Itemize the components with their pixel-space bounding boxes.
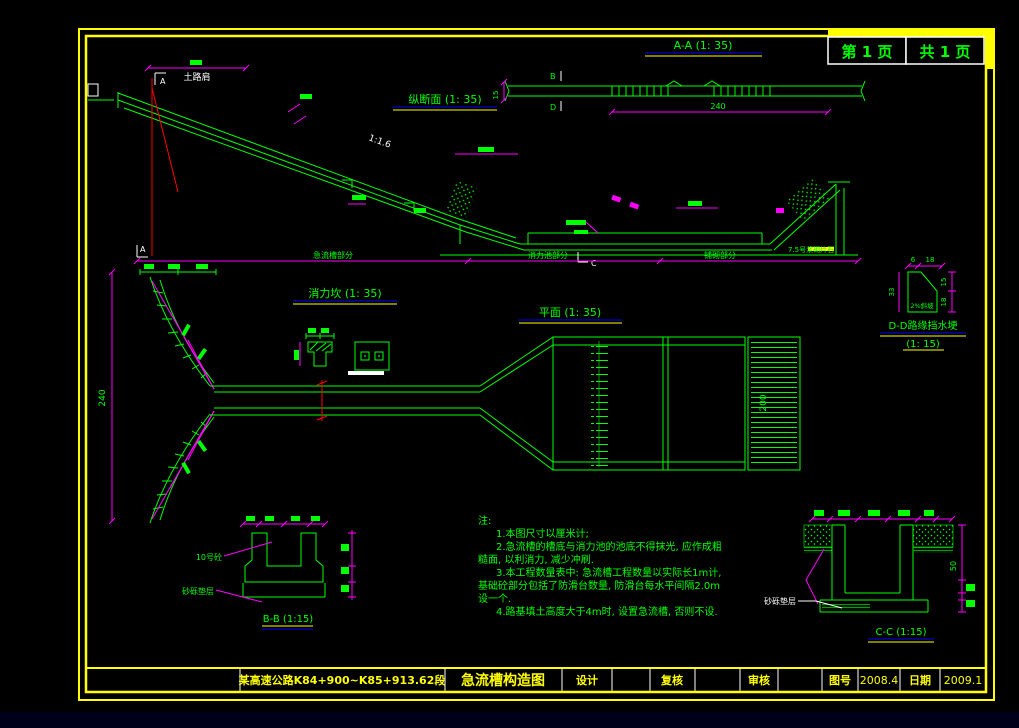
note-line: 3.本工程数量表中: 急流槽工程数量以实际长1m计, [496, 566, 721, 579]
dim-dd-top-a: 6 [911, 256, 916, 264]
view-title-plan: 平面 (1: 35) [539, 306, 601, 319]
dim-cc-depth: 50 [949, 561, 958, 571]
view-title-aa: A-A (1: 35) [674, 39, 733, 52]
dim-dd-left: 33 [888, 288, 896, 297]
notes-heading: 注: [478, 514, 491, 527]
dim-flare-height: 240 [98, 389, 108, 406]
legend-box [88, 84, 98, 96]
section-marker-d: D [550, 103, 556, 112]
page-number-box: 第 1 页 共 1 页 [828, 37, 984, 64]
title-block-date-label: 日期 [909, 673, 931, 687]
section-bb-view: 10号砼 砂砾垫层 B-B (1:15) [182, 516, 356, 629]
notes-block: 注: 1.本图尺寸以厘米计; 2.急流槽的槽底与消力池的池底不得抹光, 应作成粗… [478, 514, 722, 618]
view-title-dd: D-D路缘挡水埂 [888, 319, 957, 332]
title-block-drawing-title: 急流槽构造图 [461, 672, 545, 689]
note-line: 1.本图尺寸以厘米计; [496, 527, 589, 540]
label-bb-cushion: 砂砾垫层 [182, 586, 214, 596]
dim-aa-thickness: 15 [492, 91, 500, 100]
label-cc-cushion: 砂砾垫层 [764, 596, 796, 606]
dim-dd-right-a: 15 [940, 278, 948, 287]
dim-dd-top-b: 18 [926, 256, 935, 264]
title-block-design-label: 设计 [576, 673, 598, 687]
note-line: 4.路基填土高度大于4m时, 设置急流槽, 否则不设. [496, 605, 718, 618]
note-line: 设一个. [478, 593, 511, 605]
label-masonry: 7.5号浆砌片石 [788, 245, 834, 254]
dim-plan-depth: 200 [759, 394, 769, 411]
dim-aa-length: 240 [710, 102, 725, 111]
note-line: 2.急流槽的槽底与消力池的池底不得抹光, 应作成粗 [496, 540, 722, 553]
page-current: 第 1 页 [842, 43, 893, 61]
title-block-recheck-label: 复核 [660, 673, 683, 687]
cad-drawing: 第 1 页 共 1 页 A-A (1: 35) 15 B D 240 纵断面 (… [0, 0, 1019, 728]
label-dd-slope: 2%斜坡 [910, 301, 934, 310]
profile-view: 纵断面 (1: 35) [88, 60, 861, 268]
section-marker-a-top: A [160, 77, 166, 86]
title-block-figno-value: 2008.4 [860, 674, 899, 687]
note-line: 基础砼部分包括了防滑台数量, 防滑台每水平间隔2.0m [478, 579, 720, 592]
view-title-dd-scale: (1: 15) [906, 339, 940, 350]
label-shoulder: 土路肩 [183, 71, 210, 83]
label-apron-part: 铺砌部分 [704, 250, 736, 260]
dim-dd-right-b: 18 [940, 298, 948, 307]
title-block-date-value: 2009.1 [944, 674, 983, 687]
view-title-cc: C-C (1:15) [875, 627, 926, 638]
window-bottom-strip [0, 712, 1019, 728]
view-title-profile: 纵断面 (1: 35) [408, 92, 481, 106]
sill-detail-view: 消力坎 (1: 35) [293, 286, 397, 375]
title-block: 某高速公路K84+900~K85+913.62段 急流槽构造图 设计 复核 审核… [86, 668, 986, 691]
plan-view: 平面 (1: 35) 240 [98, 264, 800, 524]
label-slope-ratio: 1:1.6 [367, 133, 392, 150]
title-block-project: 某高速公路K84+900~K85+913.62段 [238, 673, 446, 687]
label-chute-part: 急流槽部分 [313, 250, 353, 260]
cad-canvas: 第 1 页 共 1 页 A-A (1: 35) 15 B D 240 纵断面 (… [0, 0, 1019, 728]
section-aa-view: A-A (1: 35) 15 B D 240 [492, 39, 865, 115]
title-block-review-label: 审核 [748, 673, 770, 687]
section-cc-view: 砂砾垫层 50 C-C (1:15) [764, 510, 975, 642]
section-marker-c: C [591, 259, 597, 268]
title-block-figno-label: 图号 [829, 674, 851, 687]
label-basin-part: 消力池部分 [528, 250, 568, 260]
view-title-bb: B-B (1:15) [263, 614, 314, 625]
section-dd-view: 6 18 33 15 18 2%斜坡 D-D路缘挡水埂 (1: 15) [880, 256, 966, 350]
section-marker-a-bottom: A [140, 245, 146, 254]
note-line: 糙面, 以利消力, 减少冲刷. [478, 553, 594, 566]
page-total: 共 1 页 [920, 43, 971, 61]
label-bb-wall: 10号砼 [196, 552, 222, 562]
view-title-sill: 消力坎 (1: 35) [308, 286, 381, 300]
section-marker-b: B [550, 72, 556, 81]
